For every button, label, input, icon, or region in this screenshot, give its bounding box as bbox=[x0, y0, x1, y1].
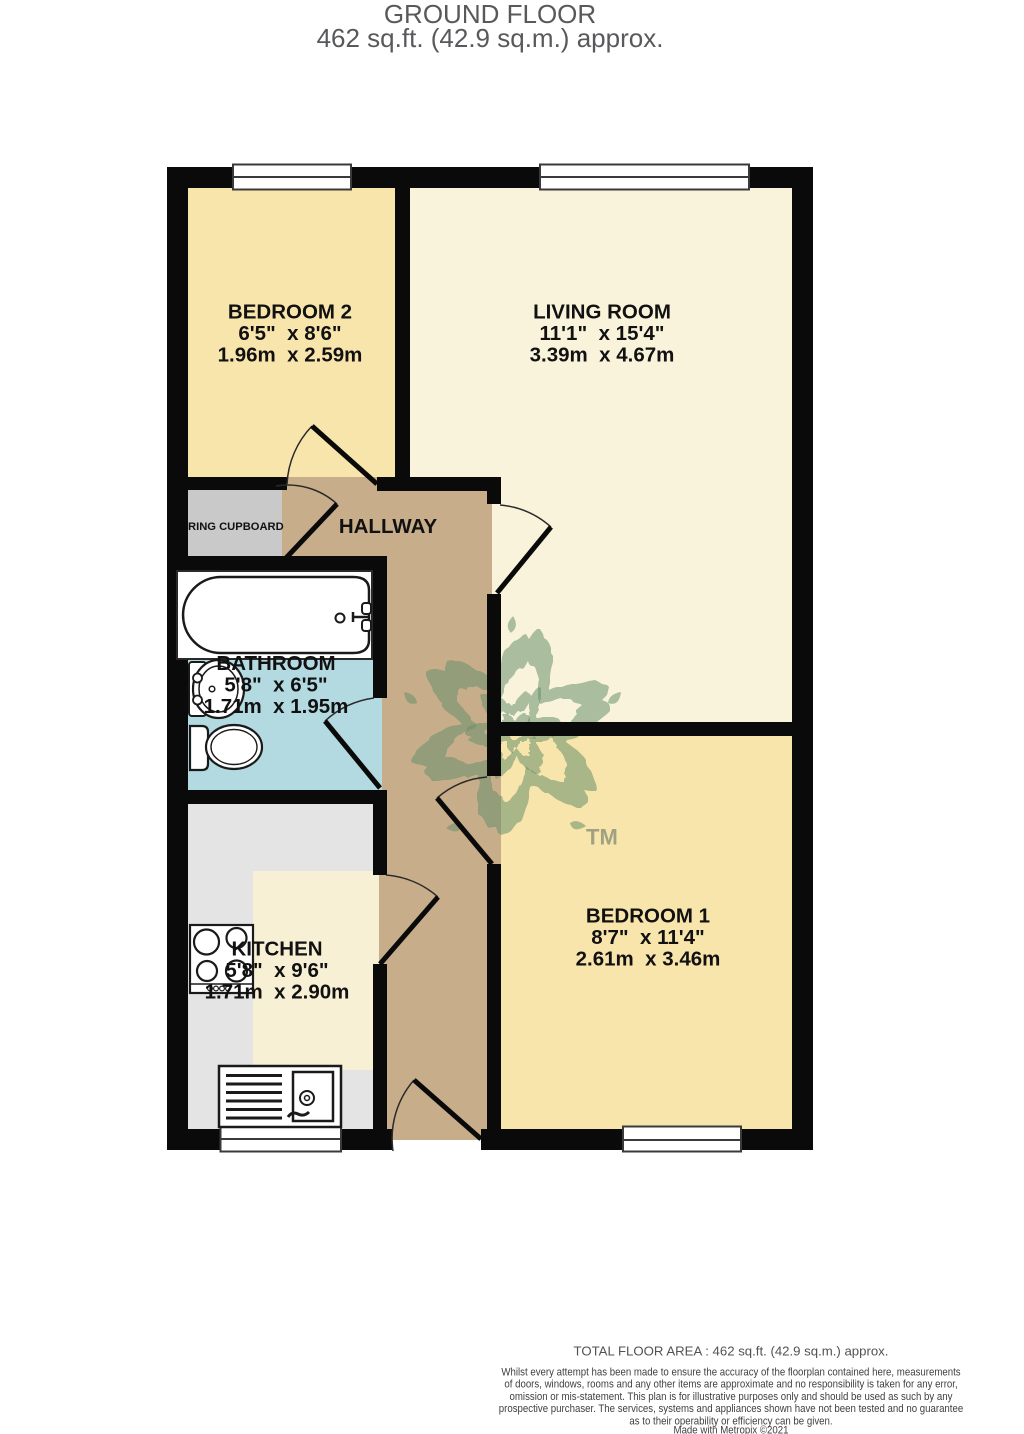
svg-text:TOTAL FLOOR AREA : 462 sq.ft.: TOTAL FLOOR AREA : 462 sq.ft. (42.9 sq.m… bbox=[574, 1344, 889, 1359]
svg-text:Made with Metropix ©2021: Made with Metropix ©2021 bbox=[674, 1425, 789, 1434]
svg-text:Whilst every attempt has been: Whilst every attempt has been made to en… bbox=[501, 1367, 960, 1379]
svg-text:BEDROOM 2: BEDROOM 2 bbox=[228, 301, 352, 324]
svg-text:HALLWAY: HALLWAY bbox=[339, 515, 438, 538]
svg-text:8'7" x 11'4": 8'7" x 11'4" bbox=[591, 926, 705, 949]
svg-text:RING CUPBOARD: RING CUPBOARD bbox=[188, 521, 284, 533]
svg-text:462 sq.ft. (42.9 sq.m.) approx: 462 sq.ft. (42.9 sq.m.) approx. bbox=[317, 23, 664, 53]
svg-text:omission or mis-statement. Thi: omission or mis-statement. This plan is … bbox=[510, 1391, 954, 1403]
svg-text:of doors, windows, rooms and a: of doors, windows, rooms and any other i… bbox=[504, 1379, 957, 1391]
svg-text:1.96m x 2.59m: 1.96m x 2.59m bbox=[218, 344, 363, 367]
svg-text:6'5" x 8'6": 6'5" x 8'6" bbox=[238, 322, 341, 345]
svg-text:11'1" x 15'4": 11'1" x 15'4" bbox=[540, 322, 665, 345]
svg-text:5'8" x 6'5": 5'8" x 6'5" bbox=[224, 674, 327, 697]
svg-text:BATHROOM: BATHROOM bbox=[216, 652, 335, 675]
svg-text:KITCHEN: KITCHEN bbox=[231, 938, 322, 961]
svg-text:3.39m x 4.67m: 3.39m x 4.67m bbox=[530, 344, 675, 367]
svg-text:LIVING ROOM: LIVING ROOM bbox=[533, 301, 671, 324]
svg-text:TM: TM bbox=[586, 825, 618, 850]
svg-text:1.71m x 1.95m: 1.71m x 1.95m bbox=[204, 695, 349, 718]
svg-text:BEDROOM 1: BEDROOM 1 bbox=[586, 905, 710, 928]
svg-text:5'8" x 9'6": 5'8" x 9'6" bbox=[225, 959, 328, 982]
svg-text:1.71m x 2.90m: 1.71m x 2.90m bbox=[205, 981, 350, 1004]
svg-text:prospective purchaser. The ser: prospective purchaser. The services, sys… bbox=[499, 1404, 964, 1416]
svg-text:2.61m x 3.46m: 2.61m x 3.46m bbox=[576, 948, 721, 971]
